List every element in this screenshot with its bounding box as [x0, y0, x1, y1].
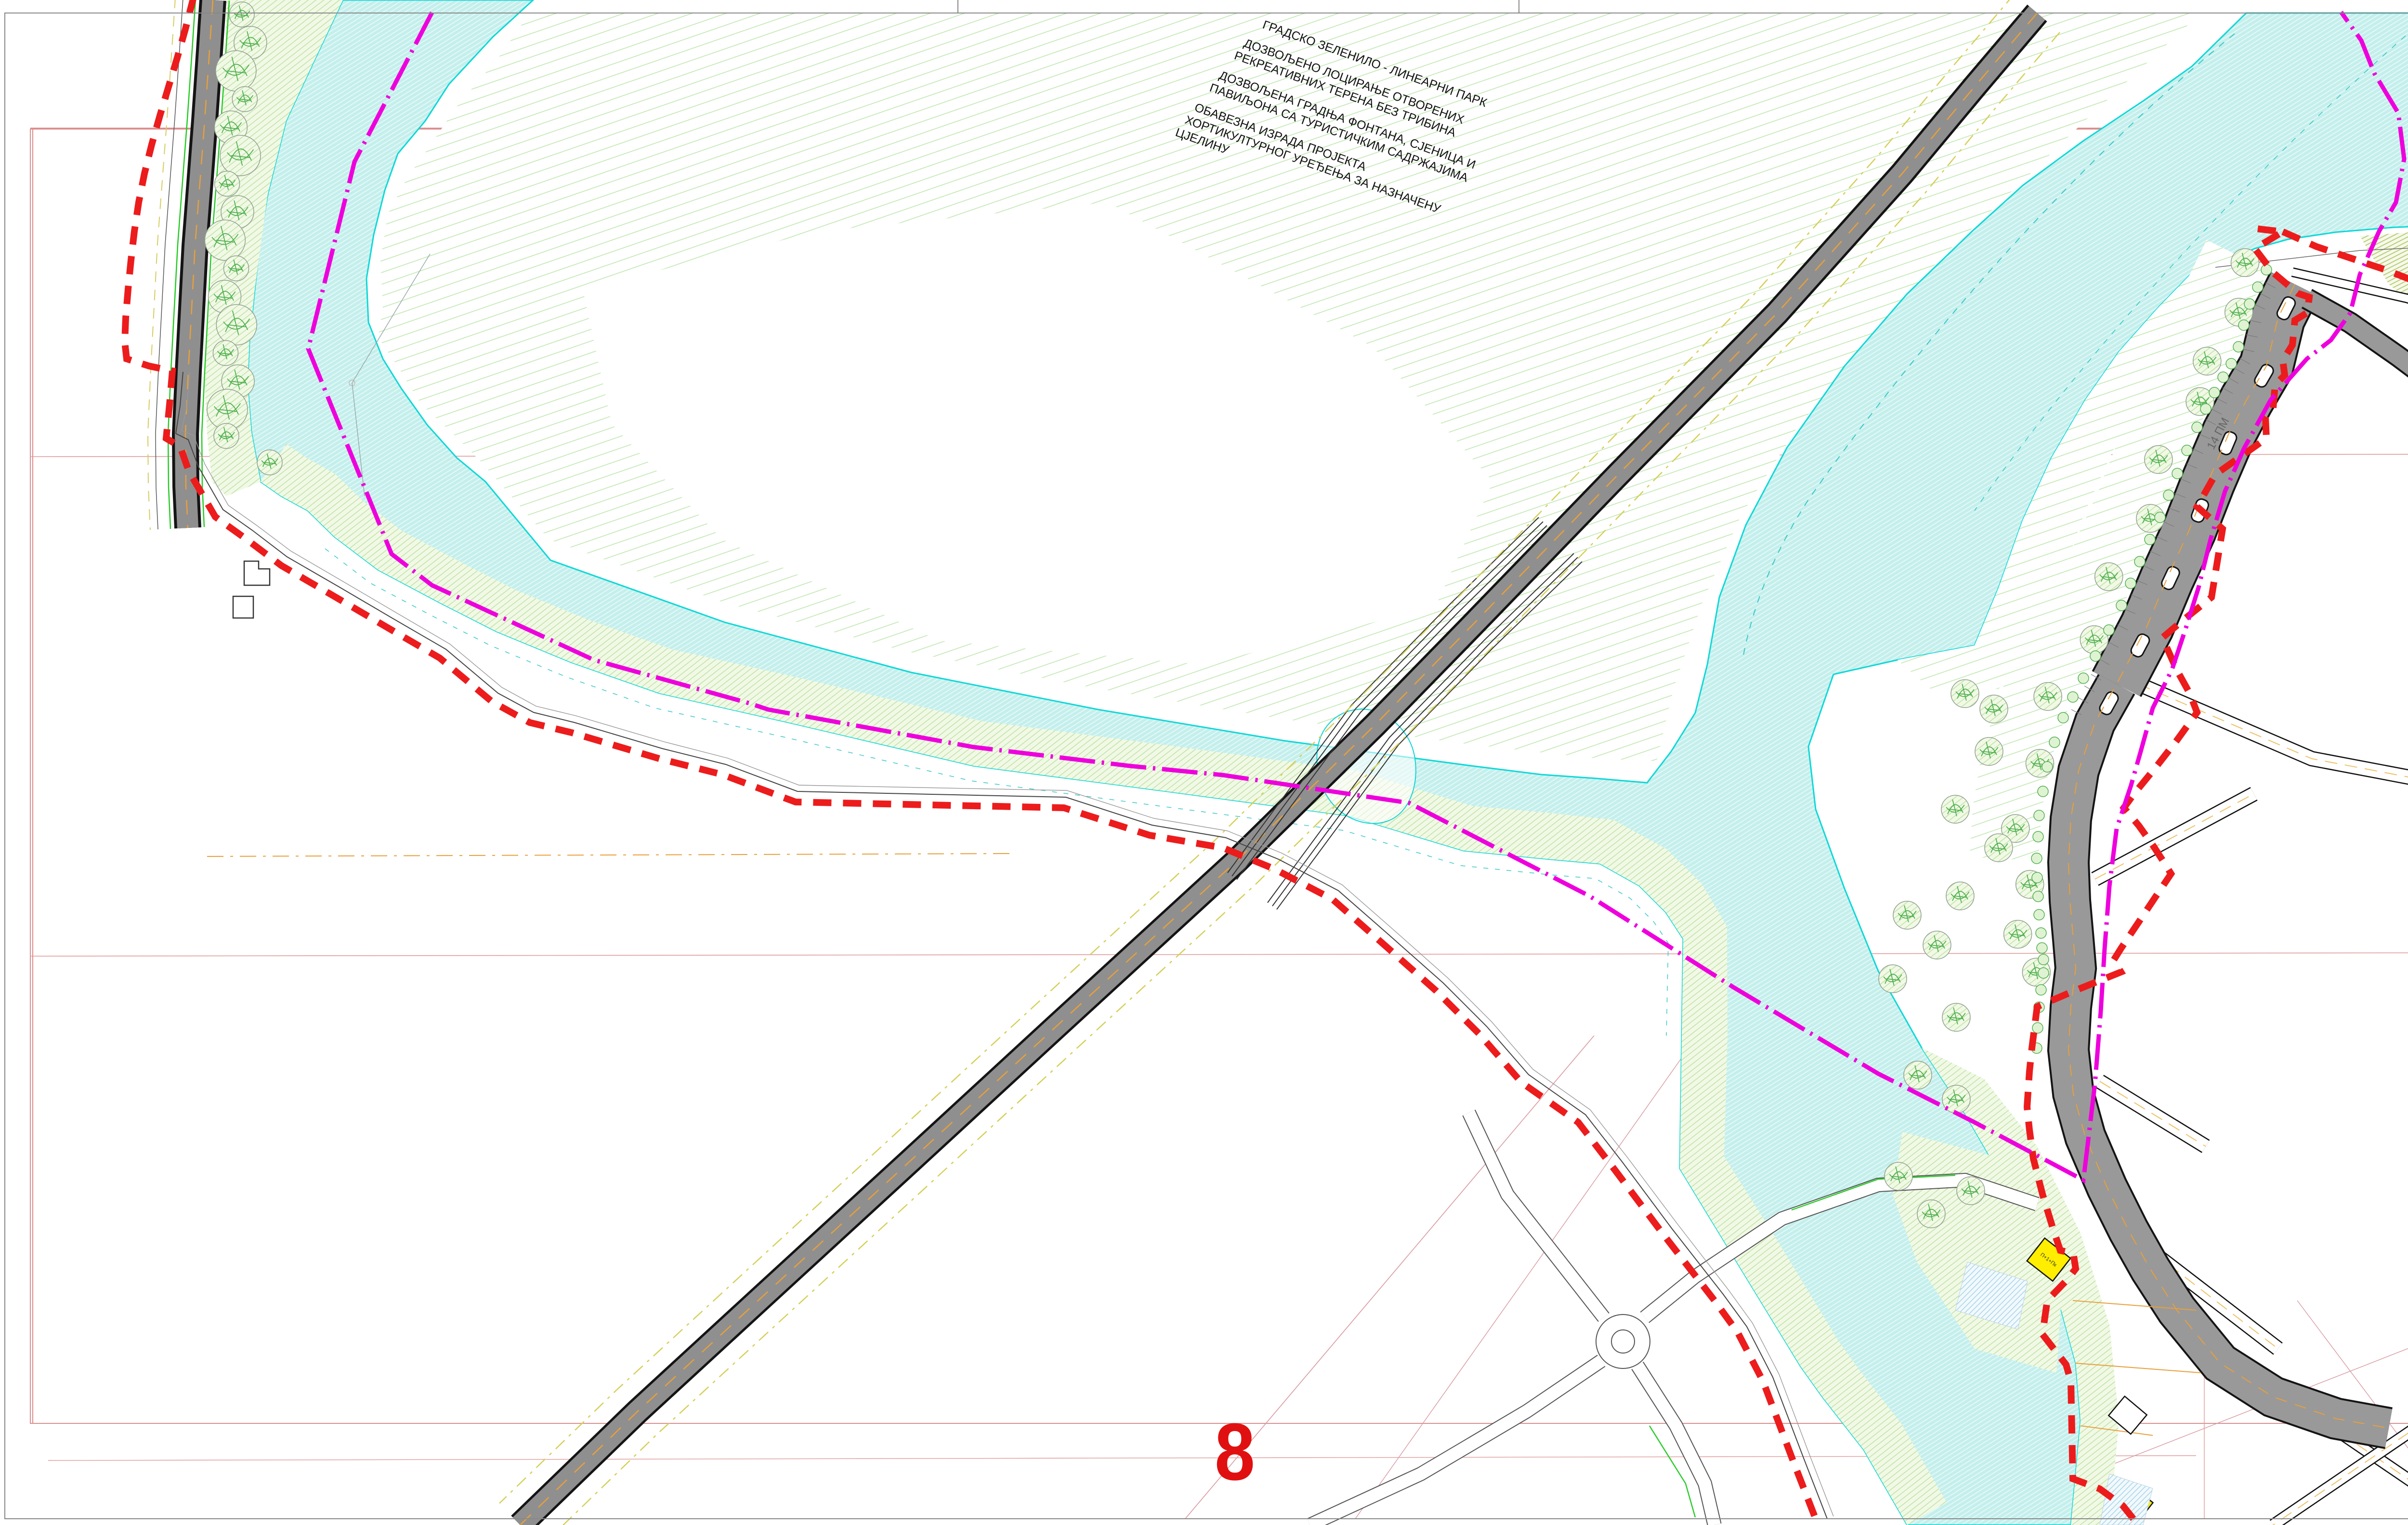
svg-text:8: 8	[1215, 1407, 1255, 1497]
